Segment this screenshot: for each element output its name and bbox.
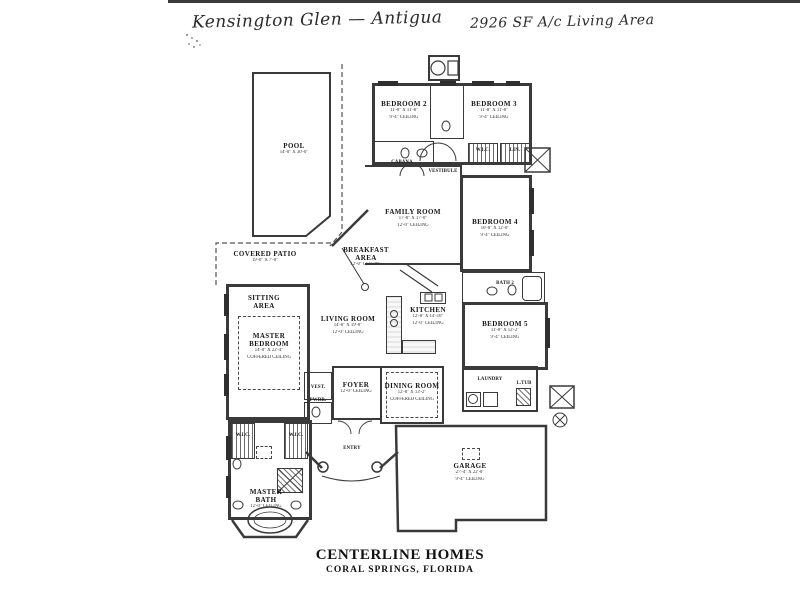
label-bath2: BATH 2 [494, 280, 516, 287]
label-wic3: W.I.C. [474, 147, 492, 154]
label-bedroom4: BEDROOM 4 10'-8" X 12'-0" 9'-4" CEILING [472, 218, 518, 240]
well-symbol [553, 413, 567, 427]
screen-enclosure-dashed [330, 64, 342, 246]
label-foyer: FOYER 12'-0" CEILING [336, 381, 376, 396]
label-pwdr: PWDR. [308, 397, 329, 404]
master-bath-bay [232, 520, 308, 537]
plan-linework [0, 0, 800, 600]
entry-splay-walls [306, 452, 398, 481]
entry-columns [318, 462, 382, 472]
label-entry: ENTRY [341, 445, 363, 452]
equipment-icons [431, 61, 458, 75]
builder-name: CENTERLINE HOMES [0, 547, 800, 564]
label-cabana: CABANA [389, 159, 416, 166]
ac-pad-icon [525, 148, 574, 408]
label-covered-patio: COVERED PATIO 19'-0" X 7'-0" [233, 250, 296, 265]
label-family-room: FAMILY ROOM 17'-8" X 17'-0" 12'-0" CEILI… [385, 208, 441, 230]
scanned-floor-plan-page: Kensington Glen — Antigua 2926 SF A/c Li… [0, 0, 800, 600]
label-kitchen: KITCHEN 12'-8" X 14'-10" 12'-0" CEILING [408, 306, 448, 328]
label-bedroom3: BEDROOM 3 11'-8" X 11'-8" 9'-4" CEILING [471, 100, 517, 122]
title-block: CENTERLINE HOMES CORAL SPRINGS, FLORIDA [0, 547, 800, 575]
label-laundry: LAUNDRY [474, 376, 505, 383]
label-vest: VEST. [309, 384, 327, 391]
label-master-bedroom: MASTER BEDROOM 14'-0" X 22'-4" COFFERED … [241, 332, 297, 362]
label-linen: LIN. [509, 147, 522, 154]
builder-location: CORAL SPRINGS, FLORIDA [0, 565, 800, 575]
label-wic2: W.I.C. [287, 432, 305, 439]
label-bedroom5: BEDROOM 5 11'-8" X 12'-2" 9'-4" CEILING [482, 320, 528, 342]
foyer-door-arcs [338, 421, 372, 434]
label-bedroom2: BEDROOM 2 11'-8" X 11'-8" 9'-4" CEILING [381, 100, 427, 122]
label-breakfast-area: BREAKFAST AREA 12'-0" CEILING [340, 246, 392, 269]
label-dining-room: DINING ROOM 12'-8" X 13'-2" COFFERED CEI… [384, 382, 440, 404]
label-ltub: L.TUB [515, 380, 534, 387]
label-pool: POOL 14'-0" X 30'-0" [276, 142, 312, 157]
label-wic1: W.I.C. [234, 432, 252, 439]
label-vestibule: VESTIBULE [425, 168, 461, 175]
kitchen-snack-bar [400, 264, 438, 292]
label-sitting-area: SITTING AREA [243, 294, 285, 310]
label-master-bath: MASTER BATH 12'-0" CEILING [244, 488, 288, 511]
label-garage: GARAGE 27'-4" X 22'-0" 9'-4" CEILING [451, 462, 488, 484]
label-living-room: LIVING ROOM 14'-8" X 19'-8" 12'-0" CEILI… [321, 315, 375, 337]
